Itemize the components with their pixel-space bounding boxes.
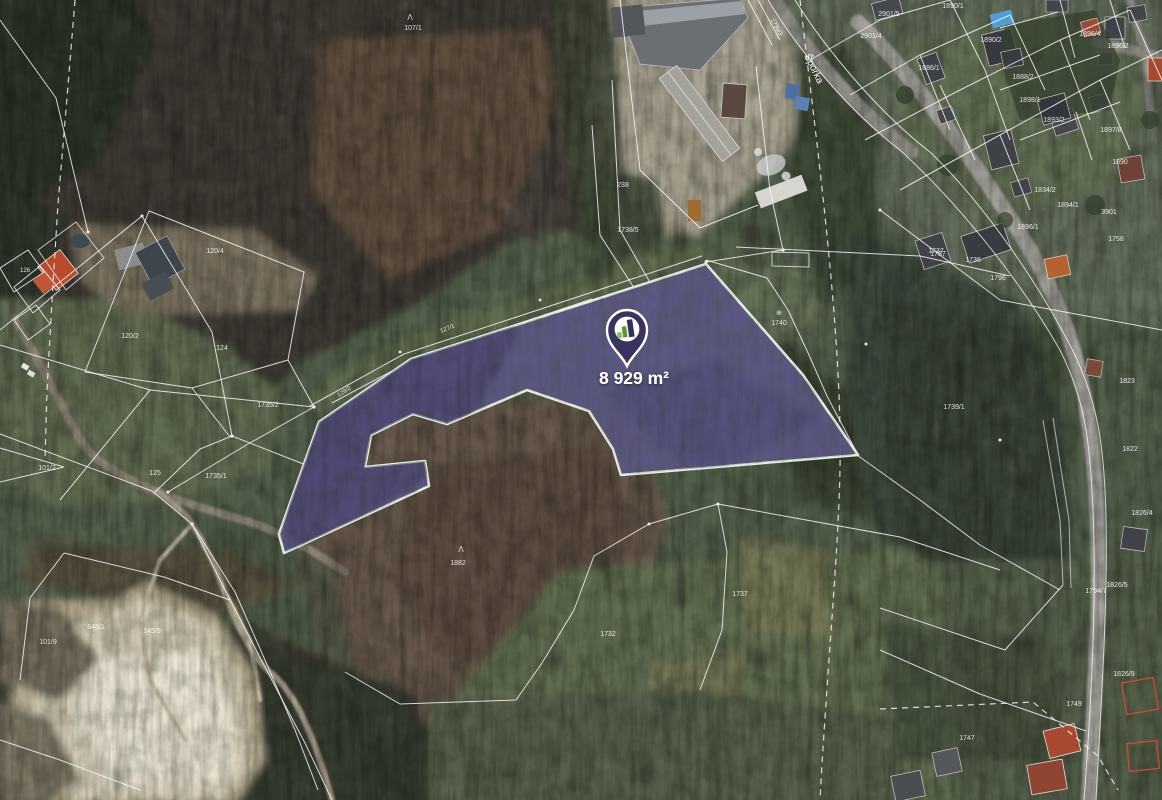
svg-text:1787: 1787 [930,251,946,258]
svg-text:1749: 1749 [1066,701,1082,708]
svg-text:1796: 1796 [990,275,1006,282]
svg-text:1894/1: 1894/1 [1057,202,1079,209]
svg-text:1823: 1823 [1119,378,1135,385]
svg-text:1896/4: 1896/4 [1079,31,1101,38]
svg-text:1898/1: 1898/1 [1019,97,1041,104]
svg-text:101/9: 101/9 [39,639,57,646]
svg-text:107/1: 107/1 [404,25,422,32]
svg-text:1897/8: 1897/8 [1100,127,1122,134]
svg-text:145/9: 145/9 [143,628,161,635]
svg-text:120/4: 120/4 [206,248,224,255]
svg-text:1737: 1737 [732,591,748,598]
svg-text:3901: 3901 [1101,209,1117,216]
svg-text:2901/4: 2901/4 [860,33,882,40]
svg-text:1890/1: 1890/1 [942,3,964,10]
svg-text:1886/1: 1886/1 [918,65,940,72]
svg-text:⊕: ⊕ [776,310,782,317]
svg-text:2901/5: 2901/5 [878,11,900,18]
svg-text:126: 126 [20,268,31,274]
svg-text:8 929 m²: 8 929 m² [599,368,669,388]
svg-text:1739/1: 1739/1 [943,404,965,411]
svg-text:1758: 1758 [1108,236,1124,243]
svg-text:1732: 1732 [600,631,616,638]
svg-text:1888/2: 1888/2 [1012,74,1034,81]
svg-text:1739/2: 1739/2 [781,259,800,265]
svg-text:1896/2: 1896/2 [1107,43,1129,50]
svg-text:1794/7: 1794/7 [1085,588,1107,595]
svg-text:1735/2: 1735/2 [257,402,279,409]
svg-text:1890: 1890 [1112,159,1128,166]
svg-text:Λ: Λ [458,545,464,554]
svg-text:101/2: 101/2 [38,465,56,472]
svg-text:1893/2: 1893/2 [1043,117,1065,124]
svg-text:1747: 1747 [959,735,975,742]
svg-text:Λ: Λ [407,13,413,22]
svg-text:1736: 1736 [965,257,981,264]
svg-text:120/2: 120/2 [121,333,139,340]
svg-text:238: 238 [617,182,629,189]
svg-text:1822: 1822 [1122,446,1138,453]
svg-text:1834/2: 1834/2 [1034,187,1056,194]
svg-text:1882: 1882 [450,560,466,567]
svg-text:1896/1: 1896/1 [1017,224,1039,231]
svg-text:124: 124 [216,345,228,352]
svg-text:1826/9: 1826/9 [1113,671,1135,678]
svg-text:125: 125 [149,470,161,477]
svg-text:648/1: 648/1 [87,624,105,631]
svg-text:1738/5: 1738/5 [617,227,639,234]
svg-text:1826/4: 1826/4 [1131,510,1153,517]
svg-text:1826/5: 1826/5 [1106,582,1128,589]
svg-text:1740: 1740 [771,320,787,327]
svg-text:1890/2: 1890/2 [980,37,1002,44]
svg-text:1735/1: 1735/1 [205,473,227,480]
